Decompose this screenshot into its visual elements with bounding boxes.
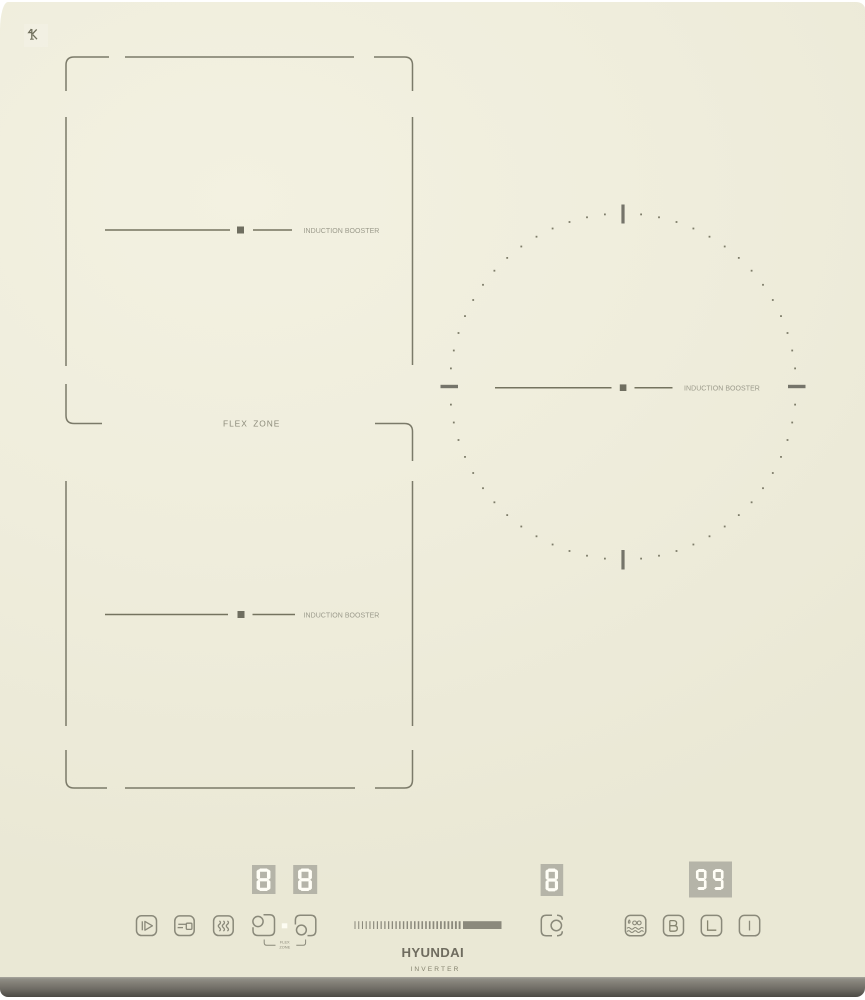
svg-text:HYUNDAI: HYUNDAI bbox=[402, 945, 465, 960]
svg-text:INVERTER: INVERTER bbox=[411, 966, 461, 973]
svg-text:FLEX ZONE: FLEX ZONE bbox=[223, 419, 280, 429]
svg-text:INDUCTION BOOSTER: INDUCTION BOOSTER bbox=[684, 386, 760, 393]
svg-text:ZONE: ZONE bbox=[279, 945, 290, 950]
svg-text:INDUCTION BOOSTER: INDUCTION BOOSTER bbox=[304, 228, 380, 235]
svg-text:INDUCTION BOOSTER: INDUCTION BOOSTER bbox=[304, 613, 380, 620]
